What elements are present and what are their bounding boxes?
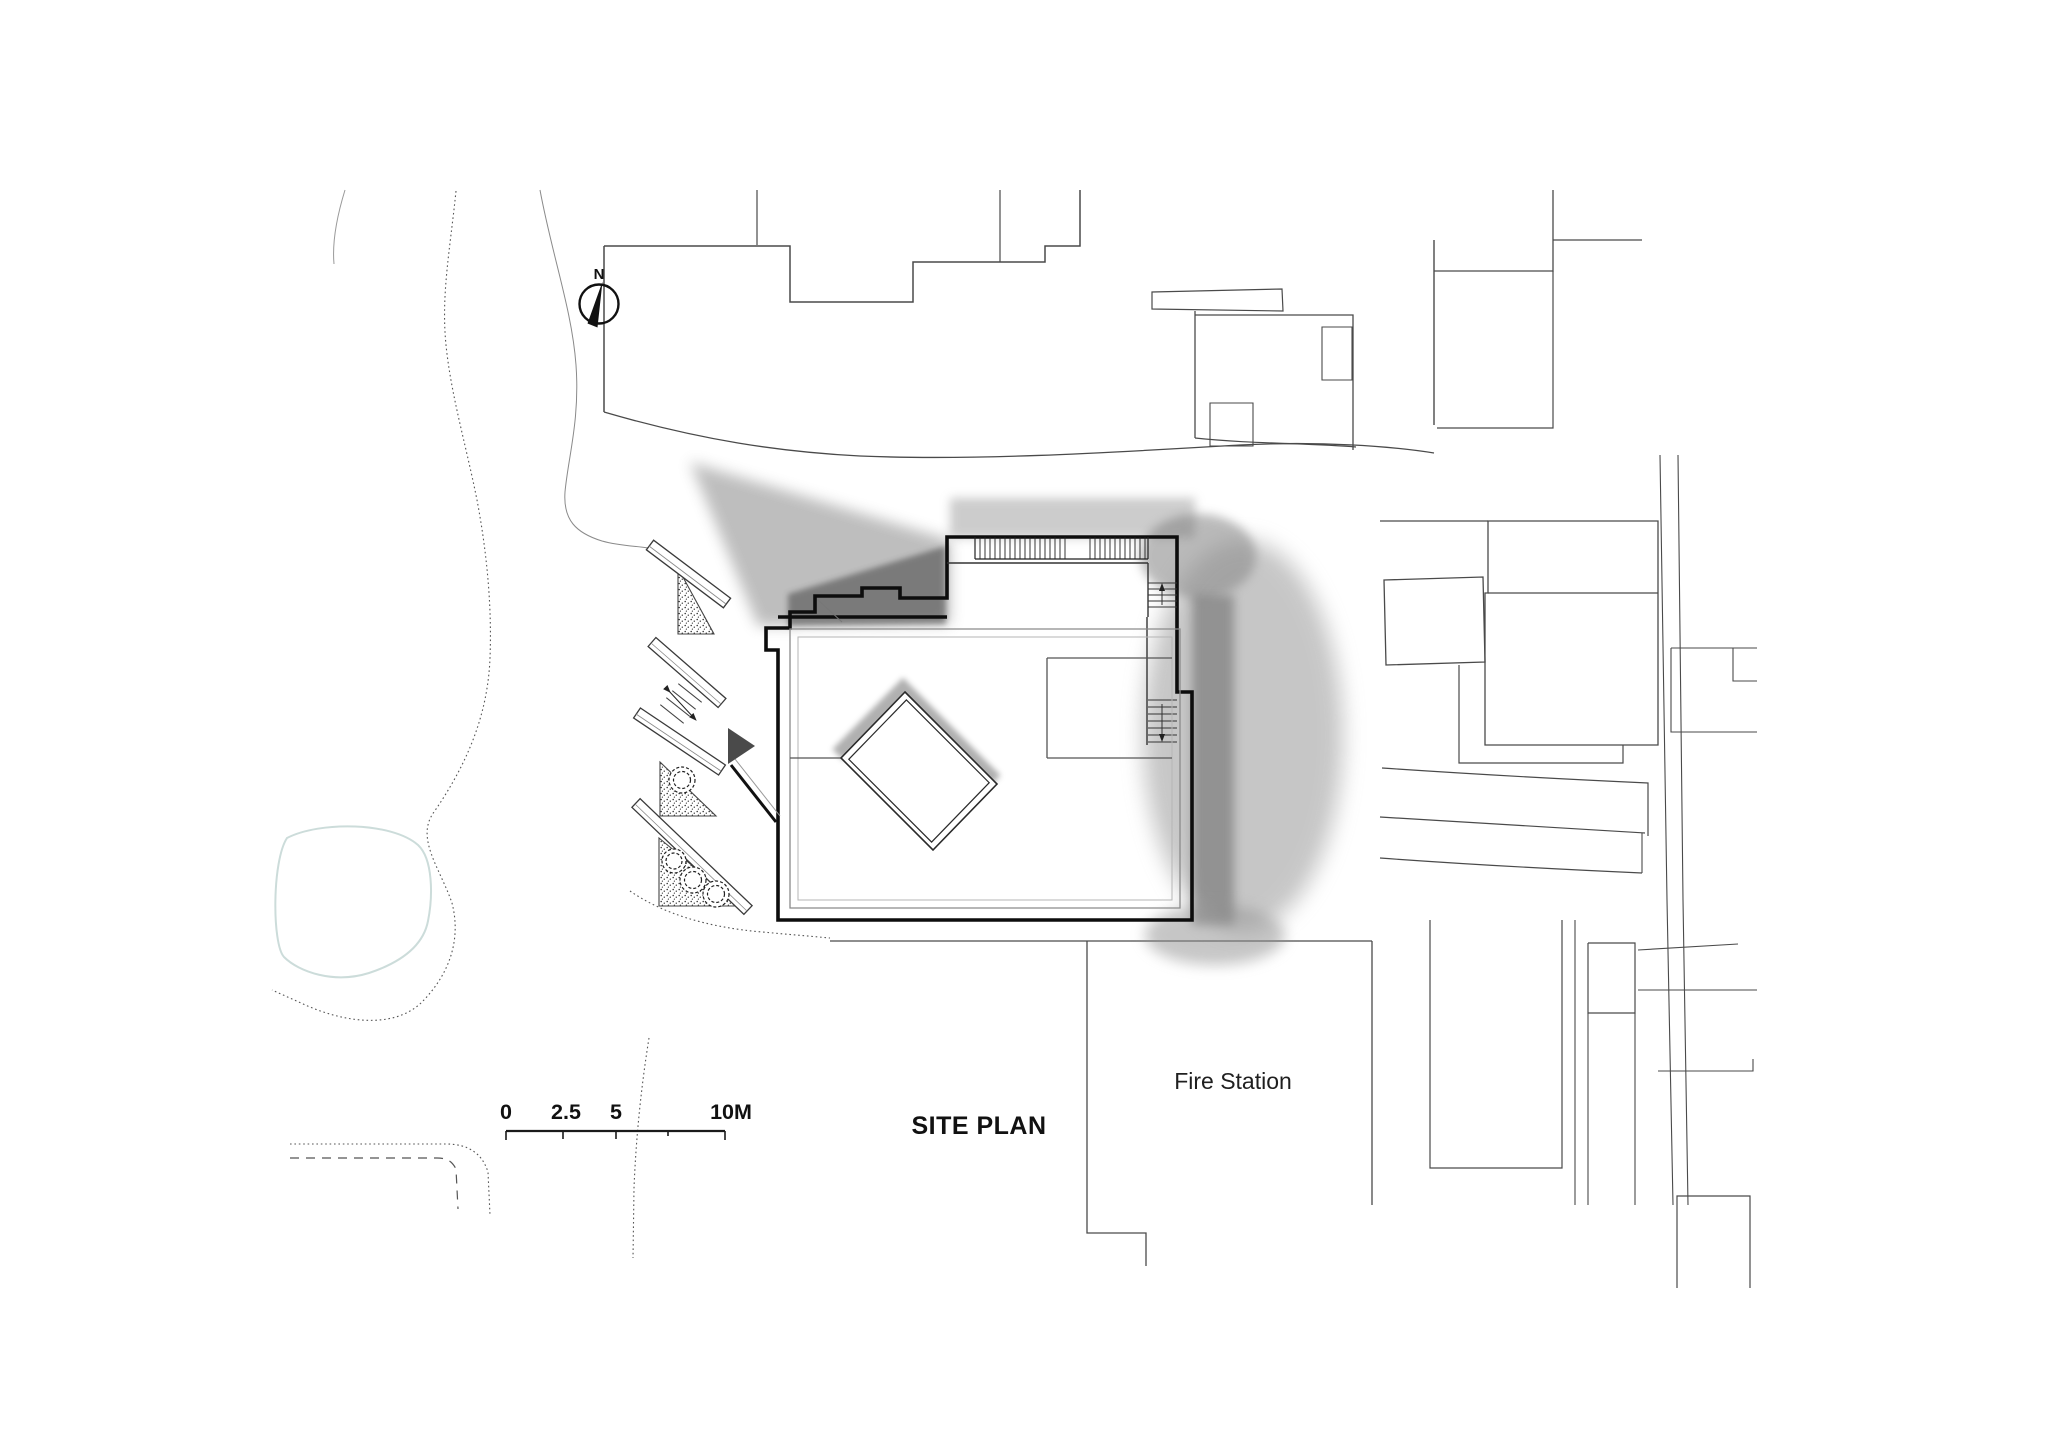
scale-label-0: 0 bbox=[500, 1100, 512, 1124]
context-building-northeast bbox=[1437, 271, 1553, 428]
context-building-northeast bbox=[1434, 190, 1553, 271]
road-corner-dotted bbox=[290, 1144, 490, 1215]
scale-bar-ticks bbox=[506, 1131, 725, 1140]
entrance-wall-inner bbox=[735, 759, 780, 816]
scale-label-2-5: 2.5 bbox=[551, 1100, 581, 1124]
shadow-east-near bbox=[1192, 595, 1234, 925]
context-building-northwest bbox=[604, 190, 1080, 302]
fire-station-block bbox=[830, 941, 1372, 1266]
context-strip bbox=[1382, 768, 1648, 836]
road-east bbox=[1678, 455, 1688, 1205]
fire-station-label: Fire Station bbox=[1174, 1068, 1292, 1094]
context-strip bbox=[1380, 858, 1642, 873]
landscape-planters bbox=[632, 540, 752, 914]
road-corner-dashed bbox=[290, 1158, 458, 1209]
boundary-dotted-lower bbox=[633, 1038, 649, 1258]
walkway-edge bbox=[540, 190, 648, 548]
context-building-east-l bbox=[1459, 665, 1623, 763]
context-inner-room bbox=[1322, 327, 1352, 380]
context-building-east bbox=[1384, 577, 1485, 665]
entrance-marker-icon bbox=[728, 728, 755, 764]
fire-station-left-edge bbox=[1087, 941, 1146, 1266]
curve-top-left bbox=[334, 190, 345, 264]
context-block-far-east bbox=[1671, 648, 1757, 732]
road-east bbox=[1660, 455, 1673, 1205]
scale-label-5: 5 bbox=[610, 1100, 622, 1124]
boundary-dotted-west bbox=[272, 191, 490, 1020]
site-plan-drawing: N 0 2.5 5 10M SITE PLAN Fire Station bbox=[0, 0, 2048, 1448]
north-arrow-needle bbox=[588, 282, 603, 328]
north-arrow: N bbox=[580, 266, 619, 328]
context-block-far-east bbox=[1733, 648, 1757, 681]
context-building-south-small bbox=[1677, 1196, 1750, 1288]
context-building-east-large bbox=[1485, 521, 1658, 745]
street-edge-north bbox=[604, 412, 1434, 457]
context-building-north-small bbox=[1152, 289, 1283, 311]
context-building-north bbox=[1195, 315, 1353, 450]
drawing-title: SITE PLAN bbox=[911, 1112, 1046, 1140]
context-building-southeast-small bbox=[1588, 943, 1635, 1013]
context-line bbox=[1658, 1059, 1753, 1071]
north-label: N bbox=[594, 266, 605, 283]
pond-outline bbox=[275, 826, 431, 977]
context-line bbox=[1638, 944, 1738, 950]
scale-label-10m: 10M bbox=[710, 1100, 752, 1124]
entrance-wall bbox=[731, 765, 776, 822]
site-plan-page: N 0 2.5 5 10M SITE PLAN Fire Station bbox=[0, 0, 2048, 1448]
scale-bar: 0 2.5 5 10M bbox=[500, 1100, 752, 1140]
shadow-southeast bbox=[1145, 905, 1285, 965]
bench-bar bbox=[648, 638, 726, 708]
context-building-southeast bbox=[1430, 920, 1562, 1168]
context-strip bbox=[1380, 817, 1645, 833]
